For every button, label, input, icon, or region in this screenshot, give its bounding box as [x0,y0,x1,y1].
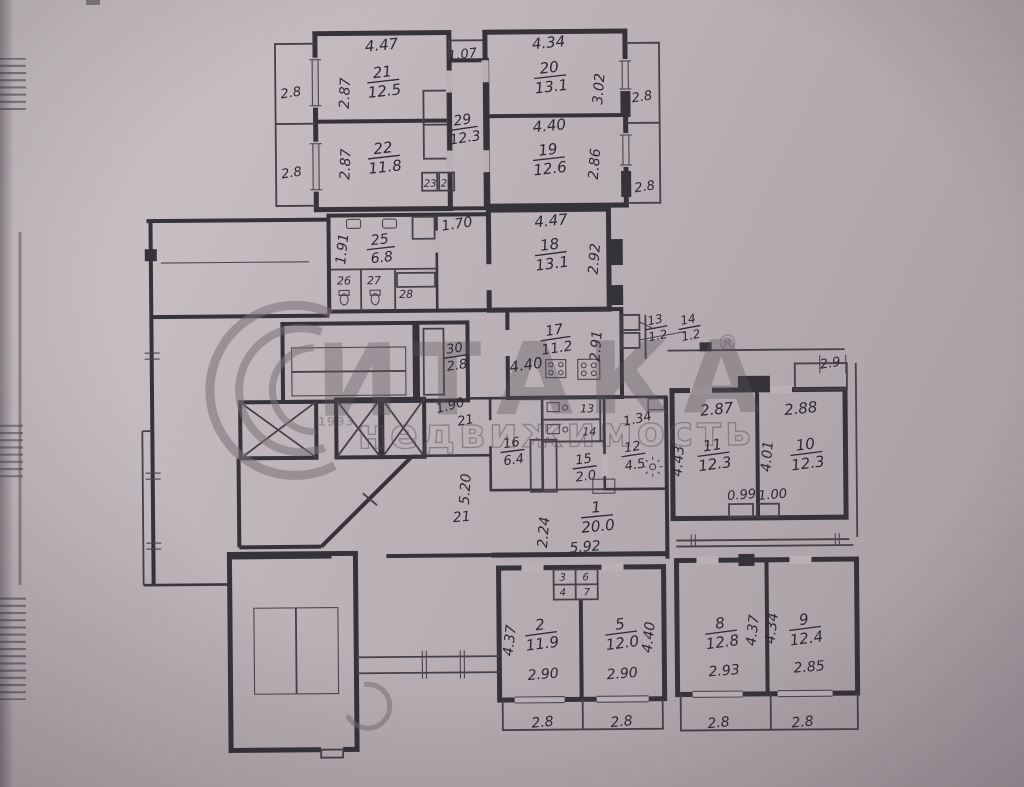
walls-top-right-block [485,31,661,207]
toilet-icon [339,290,349,305]
balcony-dim: 2.8 [280,85,303,103]
dim: 4.40 [639,621,658,654]
dim: 2.86 [586,148,604,180]
toilet-icon [370,290,380,305]
balcony-dim: 2.8 [707,714,731,732]
dim: 1.00 [758,487,788,504]
room-8-area: 12.8 [705,631,740,653]
room-2-label: 2 11.9 [522,614,560,655]
room-21-label: 21 12.5 [365,61,402,102]
room-1-label: 1 20.0 [579,497,616,537]
dim: 4.01 [758,440,776,472]
balcony-dim: 2.8 [280,165,303,183]
room-29-area: 12.3 [449,128,482,148]
room-19-label: 19 12.6 [530,139,567,180]
room-28-number: 28 [399,288,413,301]
room-22-number: 22 [372,138,393,158]
balcony-dim: 2.8 [791,713,815,731]
room-20-area: 13.1 [534,76,569,98]
room-2-number: 2 [534,615,546,634]
room-25-number: 25 [370,231,390,249]
balcony-dim: 2.8 [610,713,634,731]
dim: 2.87 [337,77,354,109]
room-13b-number: 13 [580,402,594,415]
dim: 2.90 [527,666,559,684]
dim: 2.90 [606,665,638,683]
dim: 5.92 [569,538,601,556]
dim: 2.88 [783,398,818,419]
room-21-area: 12.5 [367,80,402,102]
room-15-number: 15 [574,451,592,468]
room-6-number: 6 [582,572,588,583]
floor-plan-photo: 1993 ИТАКА ® недвижимость 21 12.5 4.47 2… [0,0,1024,787]
dim: 2.87 [699,399,734,420]
room-16-number: 16 [502,435,520,452]
dim: 2.85 [793,658,825,676]
dim: 0.99 [727,487,757,504]
room-10-number: 10 [795,434,816,454]
room-20-number: 20 [539,58,560,78]
room-25-area: 6.8 [370,249,394,267]
room-21-number: 21 [372,62,393,82]
watermark-registered-icon: ® [716,331,738,356]
dim: 2.92 [586,243,604,275]
dim: 2.91 [587,330,605,362]
room-11-number: 11 [702,435,723,455]
room-18-number: 18 [539,235,560,255]
balcony-dim: 2.8 [633,178,656,196]
room-8-label: 8 12.8 [702,612,740,653]
balcony-dim: 2.8 [531,714,555,732]
room-5-number: 5 [614,615,626,634]
dim: 3.02 [590,73,608,105]
dim: 4.34 [531,32,566,53]
floor-plan-drawing: 1993 ИТАКА ® недвижимость 21 12.5 4.47 2… [0,0,1024,787]
room-5-area: 12.0 [605,632,640,654]
room-22-label: 22 11.8 [365,137,402,178]
room-15-area: 2.0 [575,468,597,486]
room-18-area: 13.1 [534,252,569,274]
room-9-area: 12.4 [789,627,824,649]
dim: 4.43 [669,445,687,477]
room-19-area: 12.6 [532,158,567,180]
room-14b-number: 14 [582,425,596,438]
room-7-number: 7 [584,587,591,598]
room-27-number: 27 [367,274,381,287]
room-1-number: 1 [591,498,602,517]
room-20-label: 20 13.1 [532,57,569,98]
dim: 2.93 [708,662,740,680]
room-22-area: 11.8 [367,156,402,178]
room-26-number: 26 [337,274,351,287]
room-2-area: 11.9 [525,633,560,655]
room-9-number: 9 [798,610,810,629]
dim: 5.20 [457,473,475,505]
room-14-number: 14 [679,311,697,328]
room-18-label: 18 13.1 [532,234,570,275]
dim: 21 [456,412,475,430]
room-12-area: 4.5 [624,456,647,474]
room-30-area: 2.8 [446,357,469,375]
room-8-number: 8 [714,614,726,633]
dim: 4.40 [532,115,567,136]
room-5-label: 5 12.0 [602,613,640,654]
dim: 4.37 [743,614,762,647]
dim: 4.47 [364,35,399,56]
room-4-number: 4 [560,588,566,599]
dim: 4.47 [534,210,569,231]
room-16-area: 6.4 [503,452,525,470]
balcony-dim: 2.8 [631,88,654,106]
room-1-area: 20.0 [581,516,616,537]
watermark-subtitle: недвижимость [358,407,756,458]
dim: 1.91 [333,233,352,266]
dim: 4.37 [500,624,519,657]
dim: 2.24 [535,516,553,548]
dim: 21 [452,509,471,527]
room-24-number: 24 [441,179,454,190]
room-25-label: 25 6.8 [365,231,397,268]
room-13-number: 13 [646,312,664,329]
room-10-area: 12.3 [790,452,825,474]
room-10-label: 10 12.3 [788,433,826,474]
dim: 2.9 [819,355,842,373]
dim: 1.70 [440,214,473,234]
room-11-area: 12.3 [697,453,732,475]
room-9-label: 9 12.4 [786,608,824,649]
room-3-number: 3 [559,573,565,584]
dim: 4.34 [762,612,781,645]
room-19-number: 19 [537,140,558,160]
room-23-number: 23 [424,179,437,190]
dim: 2.87 [337,148,354,180]
page-edge-artifacts [0,0,100,787]
